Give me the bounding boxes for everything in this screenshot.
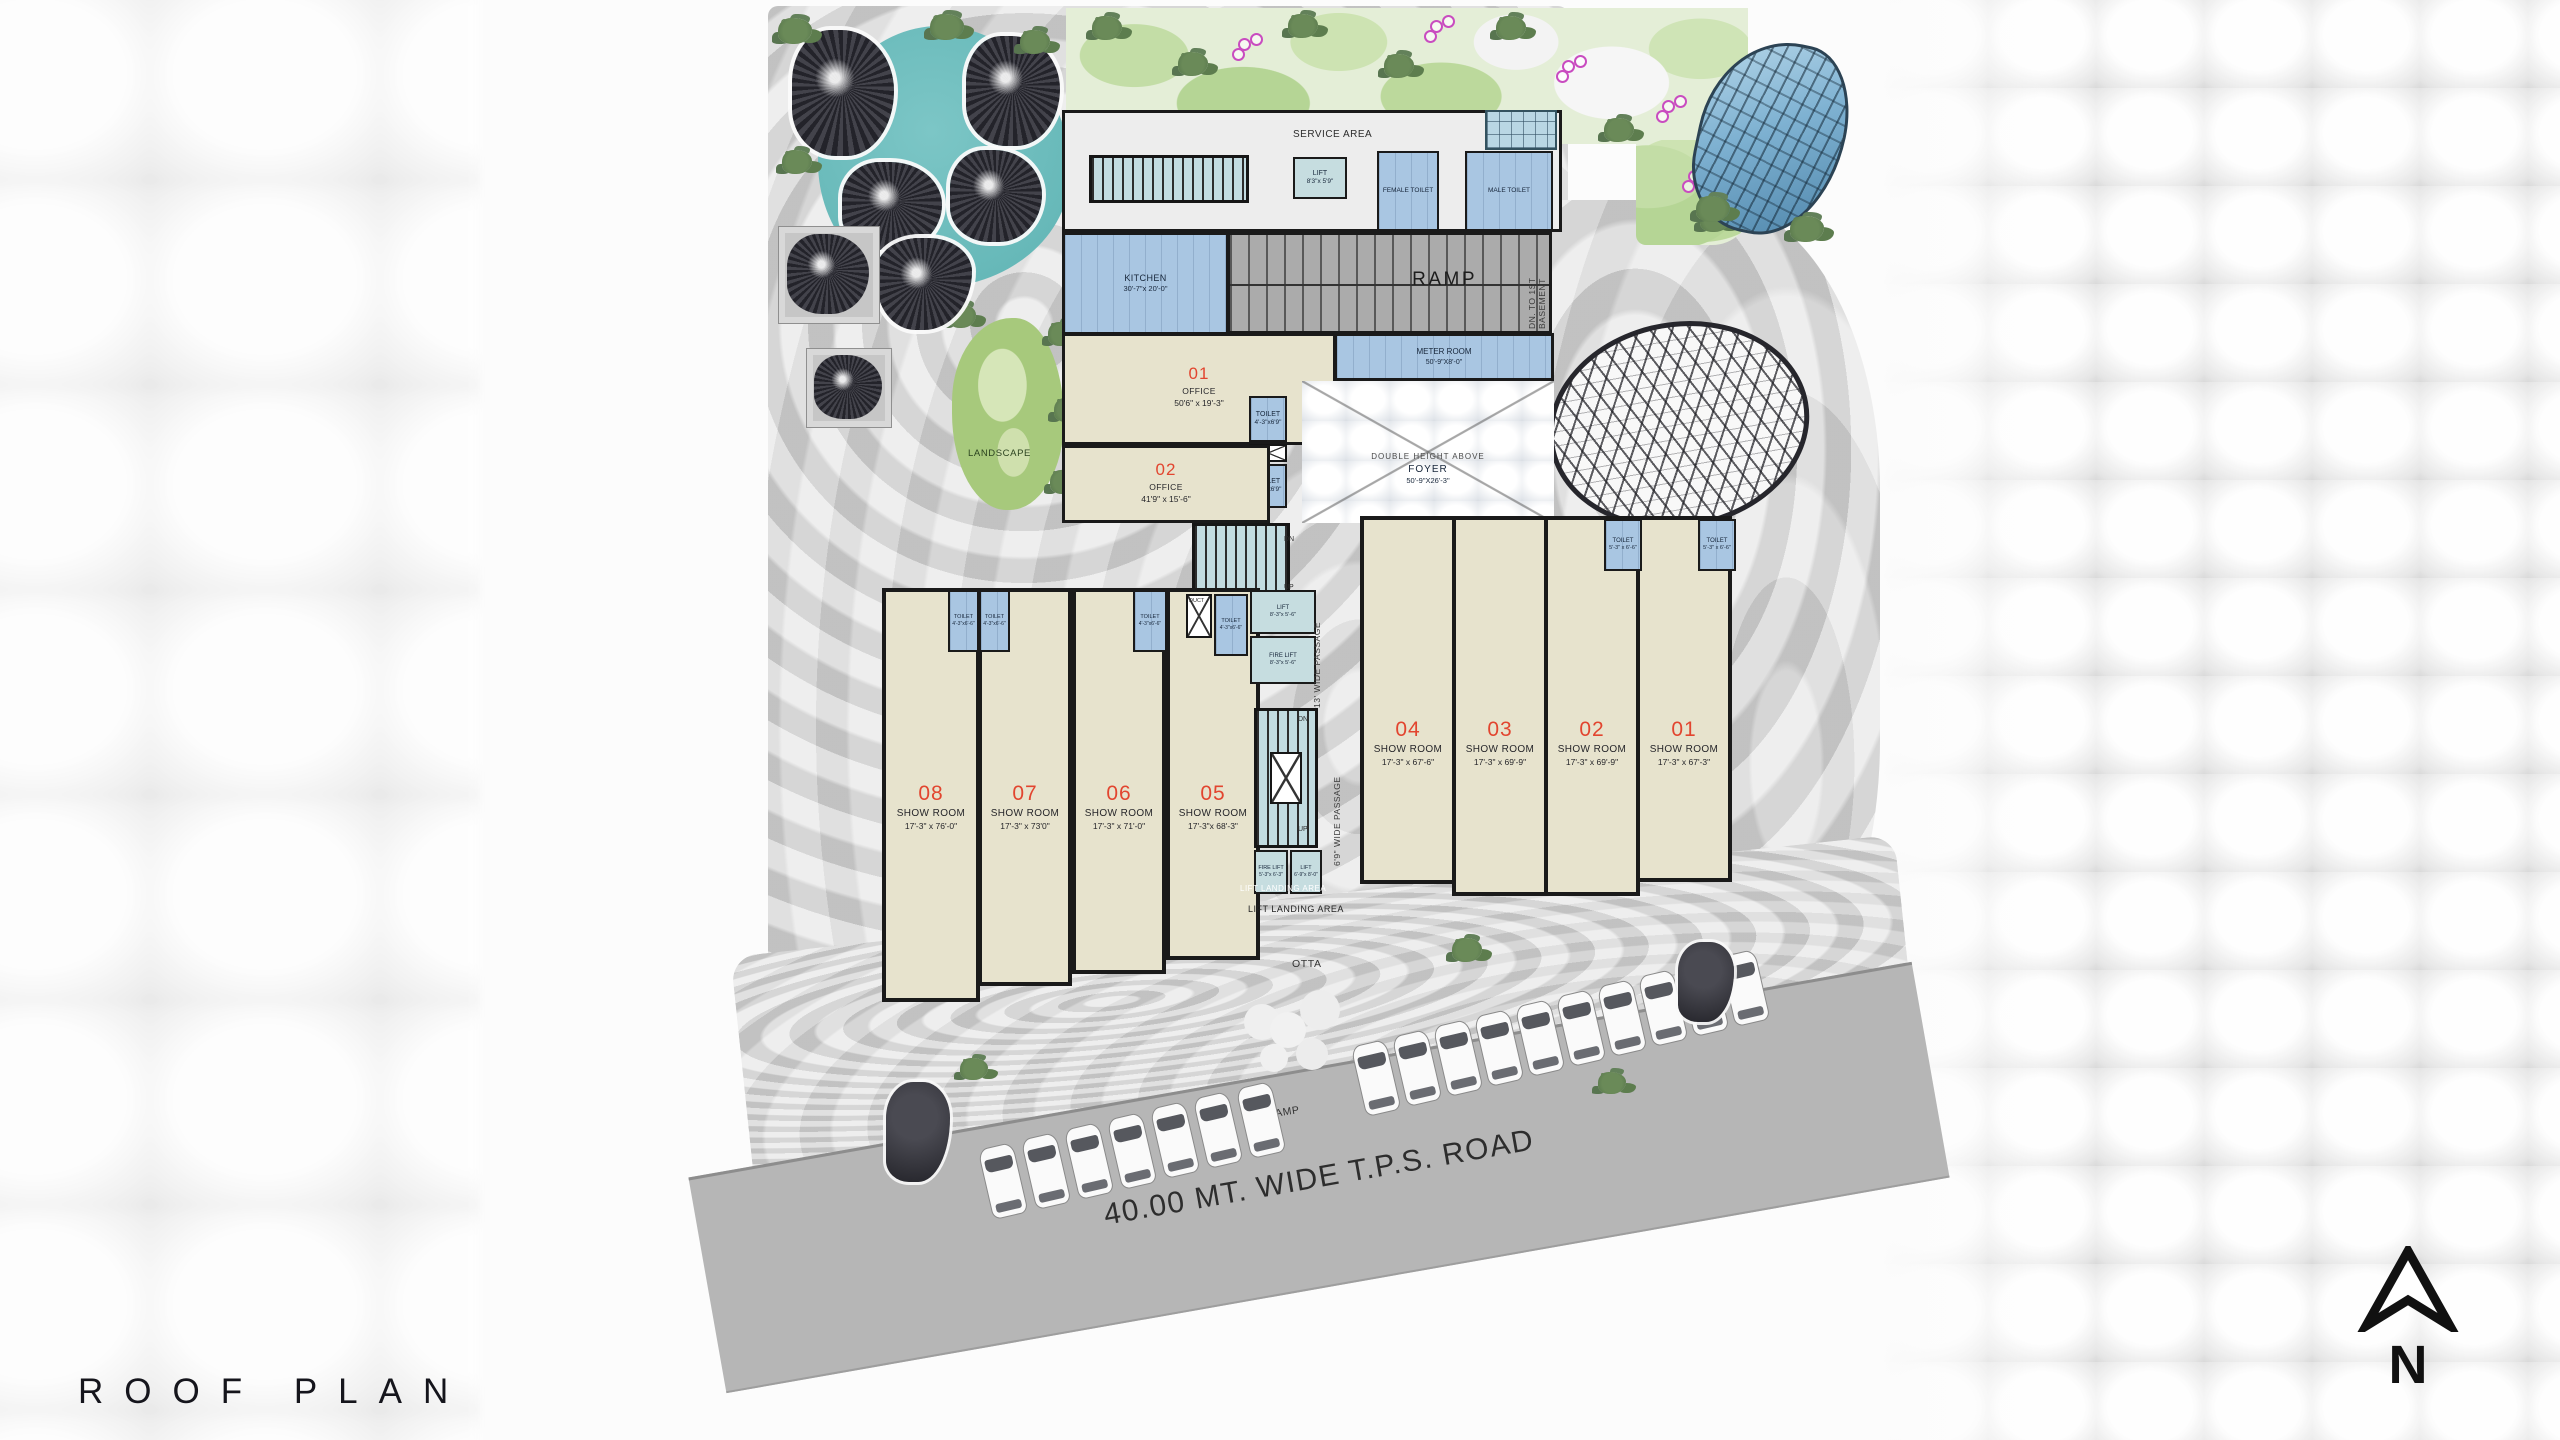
service-staircase: [1089, 155, 1249, 203]
office-toilet-1-dim: 4'-3"x6'9": [1255, 419, 1282, 427]
tree-planter: [778, 226, 880, 324]
office-02-label: 02 OFFICE 41'9" x 15'-6": [1065, 460, 1267, 504]
tree-planter: [806, 348, 892, 428]
right-toilet-over-2-dim: 5'-3" x 6'-6": [1703, 545, 1731, 552]
meter-room: METER ROOM 50'-9"X8'-0": [1334, 333, 1554, 381]
foyer: DOUBLE HEIGHT ABOVE FOYER 50'-9"X26'-3": [1302, 381, 1554, 523]
flower-cluster: [1238, 38, 1251, 51]
meter-room-dim: 50'-9"X8'-0": [1426, 358, 1462, 367]
flower-cluster: [1662, 100, 1675, 113]
north-label: N: [2348, 1334, 2468, 1396]
lift-landing-area-white: LIFT LANDING AREA: [1240, 884, 1326, 893]
shop-05-dim: 17'-3"x 68'-3": [1188, 821, 1238, 831]
female-toilet-label: FEMALE TOILET: [1383, 187, 1433, 195]
right-toilet-over-1-dim: 5'-3" x 6'-6": [1609, 545, 1637, 552]
shop-04-number: 04: [1395, 718, 1420, 742]
planter-tree: [814, 355, 882, 419]
shop-01-dim: 17'-3" x 67'-3": [1658, 757, 1710, 767]
left-toilet-4-name: TOILET: [1221, 618, 1240, 625]
shrub: [1790, 216, 1824, 242]
shop-08-number: 08: [918, 782, 943, 806]
shop-02-name: SHOW ROOM: [1558, 744, 1627, 755]
shop-04: 04 SHOW ROOM 17'-3" x 67'-6": [1360, 516, 1456, 884]
left-toilet-1-name: TOILET: [954, 614, 973, 621]
planter-tree: [787, 234, 869, 314]
shop-07-number: 07: [1012, 782, 1037, 806]
left-toilet-3: TOILET 4'-3"x6'-6": [1133, 590, 1167, 652]
left-lift-dim: 8'-3"x 5'-6": [1270, 612, 1296, 619]
central-stair-dn: DN: [1298, 716, 1308, 723]
office-01-number: 01: [1189, 364, 1210, 384]
office-02-dim: 41'9" x 15'-6": [1141, 494, 1190, 504]
left-toilet-2-name: TOILET: [985, 614, 1004, 621]
left-toilet-1: TOILET 4'-3"x6'-6": [948, 590, 979, 652]
passage-mid-label: 6'9" WIDE PASSAGE: [1332, 742, 1342, 866]
foyer-name: FOYER: [1408, 463, 1447, 476]
background-fade: [1880, 0, 2180, 1440]
shop-02-dim: 17'-3" x 69'-9": [1566, 757, 1618, 767]
kitchen: KITCHEN 30'-7"x 20'-0": [1062, 232, 1229, 335]
service-area-label: SERVICE AREA: [1293, 129, 1372, 140]
office-02: 02 OFFICE 41'9" x 15'-6": [1062, 445, 1270, 523]
shop-01-number: 01: [1671, 718, 1696, 742]
kitchen-name: KITCHEN: [1124, 273, 1166, 285]
left-fire-lift: FIRE LIFT 8'-3"x 5'-6": [1250, 636, 1316, 684]
left-toilet-1-dim: 4'-3"x6'-6": [952, 621, 974, 628]
plaza-paving-blob: [1270, 1012, 1306, 1048]
ramp-label: RAMP: [1412, 269, 1477, 291]
foyer-dim: 50'-9"X26'-3": [1406, 476, 1449, 486]
left-fire-lift-dim: 8'-3"x 5'-6": [1270, 660, 1296, 667]
left-toilet-2: TOILET 4'-3"x6'-6": [979, 590, 1010, 652]
left-toilet-4: TOILET 4'-3"x6'-6": [1214, 594, 1248, 656]
shop-03-dim: 17'-3" x 69'-9": [1474, 757, 1526, 767]
landscape-label: LANDSCAPE: [968, 448, 1031, 459]
basement-line2: BASEMENT: [1537, 243, 1547, 329]
stair-dn-label: DN: [1284, 536, 1294, 543]
service-lift: LIFT 8'3"x 5'9": [1293, 157, 1347, 199]
central-stair-up: UP: [1298, 826, 1308, 833]
shop-03-name: SHOW ROOM: [1466, 744, 1535, 755]
office-toilet-1-name: TOILET: [1256, 410, 1280, 419]
central-lift-name: LIFT: [1300, 865, 1311, 872]
shop-06-dim: 17'-3" x 71'-0": [1093, 821, 1145, 831]
right-toilet-over-1-name: TOILET: [1613, 538, 1634, 546]
right-toilet-over-2-name: TOILET: [1707, 538, 1728, 546]
shop-05-name: SHOW ROOM: [1179, 808, 1248, 819]
canopy-tree: [966, 36, 1060, 146]
right-toilet-over-2: TOILET 5'-3" x 6'-6": [1698, 519, 1736, 571]
shop-07-name: SHOW ROOM: [991, 808, 1060, 819]
male-toilet: MALE TOILET: [1465, 151, 1553, 231]
plan-title: ROOF PLAN: [78, 1372, 469, 1412]
female-toilet: FEMALE TOILET: [1377, 151, 1439, 231]
shop-01-name: SHOW ROOM: [1650, 744, 1719, 755]
north-compass: N: [2348, 1246, 2468, 1396]
left-lift: LIFT 8'-3"x 5'-6": [1250, 590, 1316, 634]
otta-label: OTTA: [1292, 958, 1322, 970]
canopy-tree: [950, 150, 1042, 242]
flower-cluster: [1562, 60, 1575, 73]
flower-cluster: [1430, 20, 1443, 33]
basement-line1: DN. TO 1ST: [1527, 243, 1537, 329]
shop-06-name: SHOW ROOM: [1085, 808, 1154, 819]
shop-04-name: SHOW ROOM: [1374, 744, 1443, 755]
office-01-dim: 50'6" x 19'-3": [1174, 398, 1223, 408]
left-toilet-2-dim: 4'-3"x6'-6": [983, 621, 1005, 628]
shop-04-dim: 17'-3" x 67'-6": [1382, 757, 1434, 767]
stair-landing: [1270, 752, 1302, 804]
shop-02-number: 02: [1579, 718, 1604, 742]
kitchen-dim: 30'-7"x 20'-0": [1123, 284, 1167, 294]
office-toilet-1: TOILET 4'-3"x6'9": [1249, 396, 1287, 442]
canopy-tree: [792, 30, 894, 156]
office-02-name: OFFICE: [1149, 482, 1183, 492]
shop-03-number: 03: [1487, 718, 1512, 742]
shop-05-number: 05: [1200, 782, 1225, 806]
basement-ramp: RAMP DN. TO 1ST BASEMENT: [1227, 232, 1552, 334]
left-toilet-3-name: TOILET: [1140, 614, 1159, 621]
office-01-label: 01 OFFICE 50'6" x 19'-3": [1065, 364, 1333, 408]
meter-room-name: METER ROOM: [1416, 347, 1471, 357]
central-lift-dim: 6'-9"x 8'-0": [1294, 872, 1318, 879]
background-texture-left: [0, 0, 480, 1440]
left-toilet-3-dim: 4'-3"x6'-6": [1139, 621, 1161, 628]
office-01-name: OFFICE: [1182, 386, 1216, 396]
office-01: 01 OFFICE 50'6" x 19'-3": [1062, 333, 1336, 445]
left-fire-lift-name: FIRE LIFT: [1269, 653, 1297, 661]
shop-03: 03 SHOW ROOM 17'-3" x 69'-9": [1452, 516, 1548, 896]
duct-label: DUCT: [1189, 598, 1204, 604]
right-toilet-over-1: TOILET 5'-3" x 6'-6": [1604, 519, 1642, 571]
glass-grid-roof: [1485, 110, 1557, 150]
ramp-centerline: [1230, 284, 1549, 286]
service-lift-name: LIFT: [1313, 169, 1327, 178]
service-lift-dim: 8'3"x 5'9": [1307, 178, 1334, 186]
shop-06-number: 06: [1106, 782, 1131, 806]
central-fire-lift-dim: 5'-3"x 6'-3": [1259, 872, 1283, 879]
shop-08-dim: 17'-3" x 76'-0": [905, 821, 957, 831]
lift-landing-area-black: LIFT LANDING AREA: [1248, 904, 1344, 914]
landscape-lawn: [952, 318, 1064, 510]
shop-08-name: SHOW ROOM: [897, 808, 966, 819]
shop-02: 02 SHOW ROOM 17'-3" x 69'-9": [1544, 516, 1640, 896]
male-toilet-label: MALE TOILET: [1488, 187, 1530, 195]
central-fire-lift-name: FIRE LIFT: [1258, 865, 1283, 872]
left-toilet-4-dim: 4'-3"x6'-6": [1220, 625, 1242, 632]
foyer-line1: DOUBLE HEIGHT ABOVE: [1371, 452, 1485, 462]
shop-07-dim: 17'-3" x 73'0": [1000, 821, 1049, 831]
passage-13-label: 13' WIDE PASSAGE: [1312, 596, 1322, 708]
office-02-number: 02: [1156, 460, 1177, 480]
service-block: SERVICE AREA LIFT 8'3"x 5'9" FEMALE TOIL…: [1062, 110, 1562, 232]
north-arrow-icon: [2353, 1246, 2463, 1332]
left-lift-name: LIFT: [1277, 605, 1289, 613]
roof-plan-canvas: 40.00 MT. WIDE T.P.S. ROAD OTTA UP RAMP …: [0, 0, 2560, 1440]
basement-direction-label: DN. TO 1ST BASEMENT: [1527, 243, 1547, 329]
